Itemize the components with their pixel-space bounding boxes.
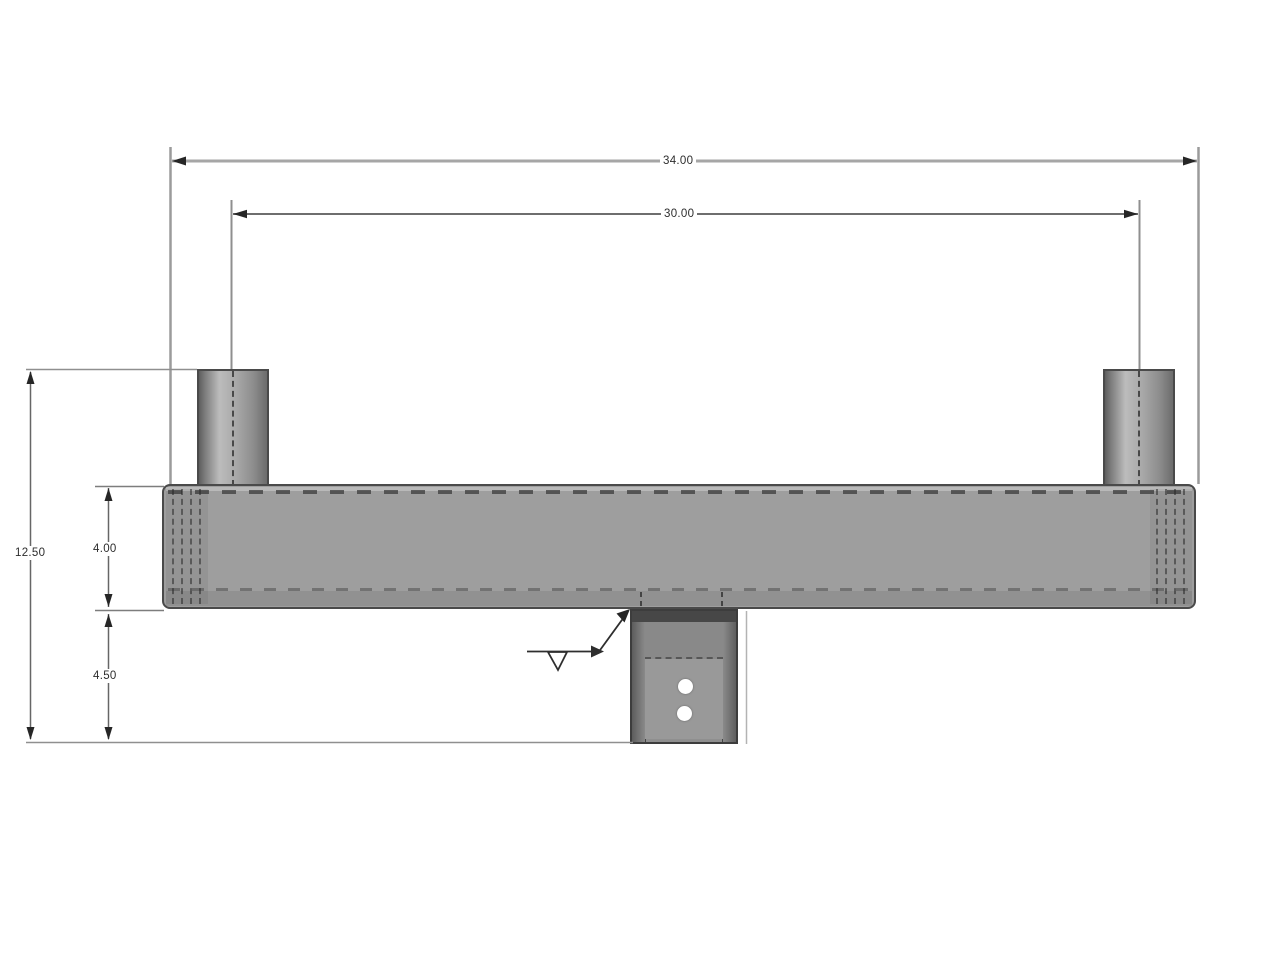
- dimension-label-tenon-spacing: 30.00: [661, 207, 697, 221]
- weld-leader-arrowhead-icon: [617, 609, 631, 623]
- arrowhead-right-icon: [1183, 157, 1197, 166]
- dimension-label-overall-width: 34.00: [660, 154, 696, 168]
- arrowhead-left-icon: [172, 157, 186, 166]
- weld-symbol: [527, 609, 630, 670]
- dimension-label-mount-drop: 4.50: [90, 669, 120, 683]
- dimension-label-bar-height: 4.00: [90, 542, 120, 556]
- fillet-weld-triangle-icon: [548, 652, 567, 670]
- arrowhead-up-icon: [105, 488, 113, 501]
- arrowhead-down-icon: [105, 594, 113, 607]
- arrowhead-up-icon: [27, 371, 35, 384]
- arrowhead-right-icon: [1124, 210, 1138, 218]
- dimension-label-overall-height: 12.50: [12, 546, 48, 560]
- arrowhead-down-icon: [27, 727, 35, 740]
- arrowhead-up-icon: [105, 614, 113, 627]
- arrowhead-down-icon: [105, 727, 113, 740]
- arrowhead-left-icon: [233, 210, 247, 218]
- technical-drawing-canvas: 34.00 30.00 12.50 4.00 4.50: [0, 0, 1280, 960]
- dimension-overlay: [0, 0, 1280, 960]
